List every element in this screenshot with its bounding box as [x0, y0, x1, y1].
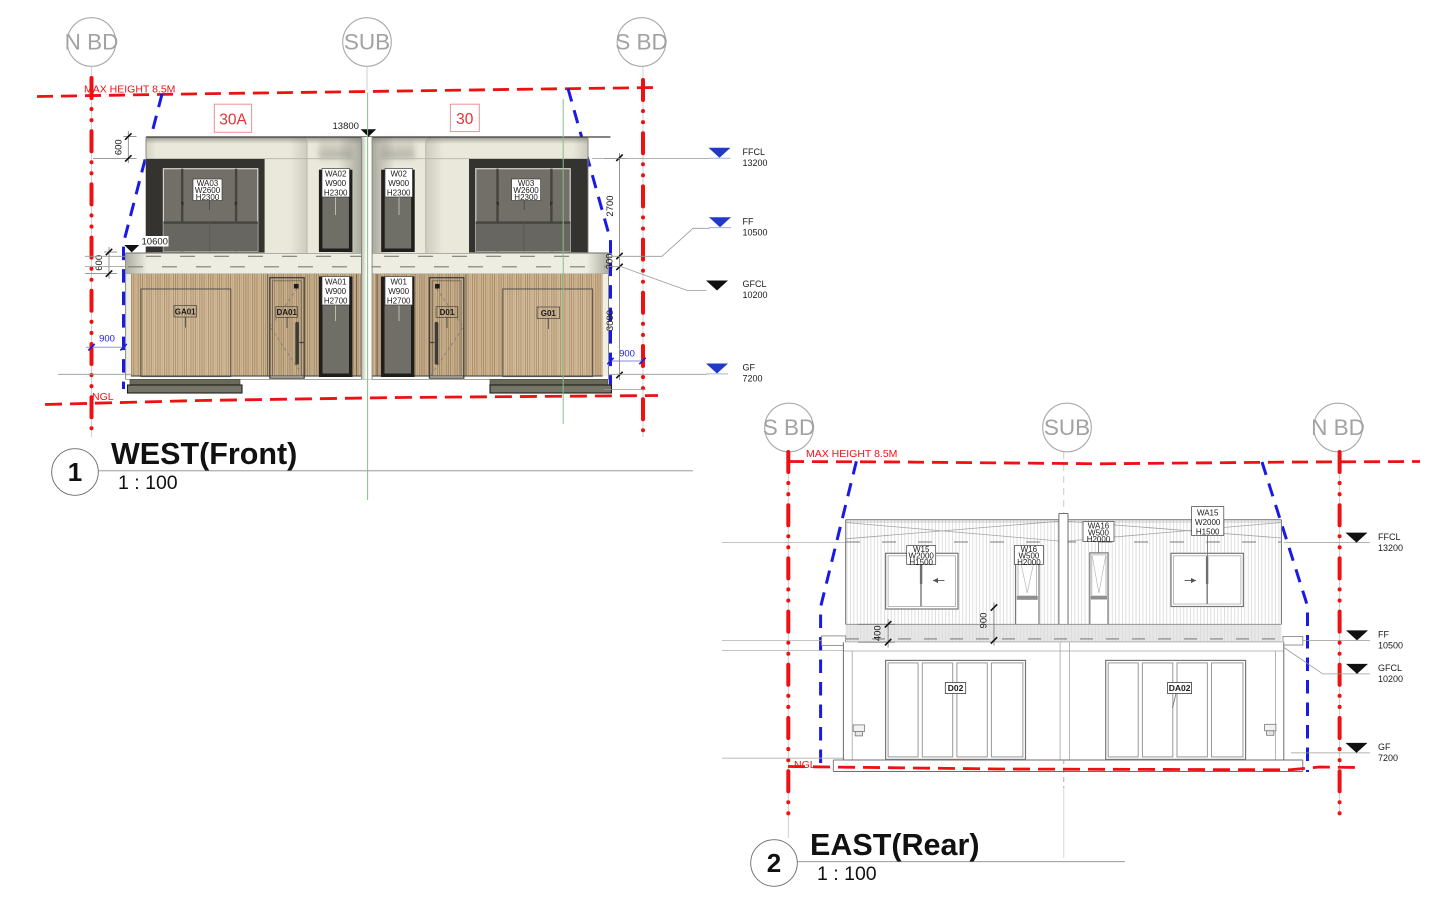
svg-text:30: 30: [456, 111, 474, 128]
svg-text:D02: D02: [948, 683, 964, 693]
svg-text:WA02: WA02: [325, 170, 347, 179]
svg-text:WA01: WA01: [325, 278, 347, 287]
svg-text:H2000: H2000: [1017, 558, 1041, 567]
svg-text:FF: FF: [743, 217, 754, 227]
svg-text:2700: 2700: [605, 195, 616, 216]
svg-text:NGL: NGL: [92, 391, 114, 403]
svg-text:600: 600: [114, 139, 125, 155]
svg-text:G01: G01: [541, 309, 557, 318]
svg-text:10200: 10200: [1378, 674, 1403, 684]
svg-text:FFCL: FFCL: [743, 147, 766, 157]
svg-text:N BD: N BD: [1311, 415, 1365, 440]
svg-text:D01: D01: [440, 308, 455, 317]
svg-text:DA01: DA01: [276, 308, 297, 317]
svg-text:1 : 100: 1 : 100: [118, 472, 178, 494]
svg-text:10500: 10500: [743, 228, 768, 238]
svg-text:GF: GF: [1378, 742, 1391, 752]
svg-text:NGL: NGL: [794, 759, 816, 771]
svg-text:EAST(Rear): EAST(Rear): [810, 828, 979, 862]
svg-text:1 : 100: 1 : 100: [817, 863, 877, 885]
svg-text:MAX HEIGHT 8.5M: MAX HEIGHT 8.5M: [806, 448, 897, 460]
svg-text:W900: W900: [325, 179, 346, 188]
svg-text:SUB: SUB: [344, 30, 390, 55]
svg-text:400: 400: [873, 625, 884, 641]
svg-text:H1500: H1500: [909, 558, 933, 567]
svg-text:900: 900: [619, 349, 635, 360]
svg-text:H2300: H2300: [196, 193, 220, 202]
svg-text:W02: W02: [390, 170, 407, 179]
svg-text:7200: 7200: [743, 374, 763, 384]
svg-text:FF: FF: [1378, 630, 1389, 640]
svg-text:10200: 10200: [743, 290, 768, 300]
svg-text:GFCL: GFCL: [743, 279, 767, 289]
svg-text:WA15: WA15: [1197, 509, 1219, 518]
svg-text:GF: GF: [743, 363, 756, 373]
svg-text:S BD: S BD: [615, 30, 668, 55]
svg-text:H1500: H1500: [1196, 528, 1220, 537]
svg-text:W900: W900: [388, 287, 409, 296]
svg-text:13200: 13200: [743, 158, 768, 168]
svg-text:10600: 10600: [142, 237, 168, 248]
svg-text:H2300: H2300: [514, 193, 538, 202]
svg-text:3000: 3000: [605, 310, 616, 331]
svg-text:1: 1: [68, 457, 82, 487]
svg-text:SUB: SUB: [1044, 415, 1090, 440]
svg-text:600: 600: [94, 255, 105, 271]
svg-text:13800: 13800: [333, 121, 359, 132]
svg-text:2: 2: [767, 848, 781, 878]
svg-text:WEST(Front): WEST(Front): [111, 437, 297, 471]
svg-text:S BD: S BD: [763, 415, 816, 440]
svg-text:900: 900: [979, 613, 990, 629]
svg-text:W01: W01: [390, 278, 407, 287]
svg-text:N BD: N BD: [65, 30, 119, 55]
svg-text:W900: W900: [325, 287, 346, 296]
svg-text:H2000: H2000: [1087, 535, 1111, 544]
svg-text:H2700: H2700: [324, 297, 348, 306]
svg-text:DA02: DA02: [1169, 683, 1191, 693]
svg-text:10500: 10500: [1378, 641, 1403, 651]
svg-text:W900: W900: [388, 179, 409, 188]
svg-text:7200: 7200: [1378, 753, 1398, 763]
svg-text:30A: 30A: [219, 112, 247, 129]
svg-text:H2300: H2300: [387, 189, 411, 198]
svg-text:W2000: W2000: [1195, 518, 1221, 527]
svg-text:13200: 13200: [1378, 543, 1403, 553]
svg-text:GFCL: GFCL: [1378, 663, 1402, 673]
svg-text:MAX HEIGHT 8.5M: MAX HEIGHT 8.5M: [84, 84, 175, 96]
svg-text:900: 900: [99, 334, 115, 345]
svg-text:H2300: H2300: [324, 189, 348, 198]
svg-text:H2700: H2700: [387, 297, 411, 306]
svg-text:GA01: GA01: [175, 307, 196, 316]
svg-text:FFCL: FFCL: [1378, 532, 1401, 542]
